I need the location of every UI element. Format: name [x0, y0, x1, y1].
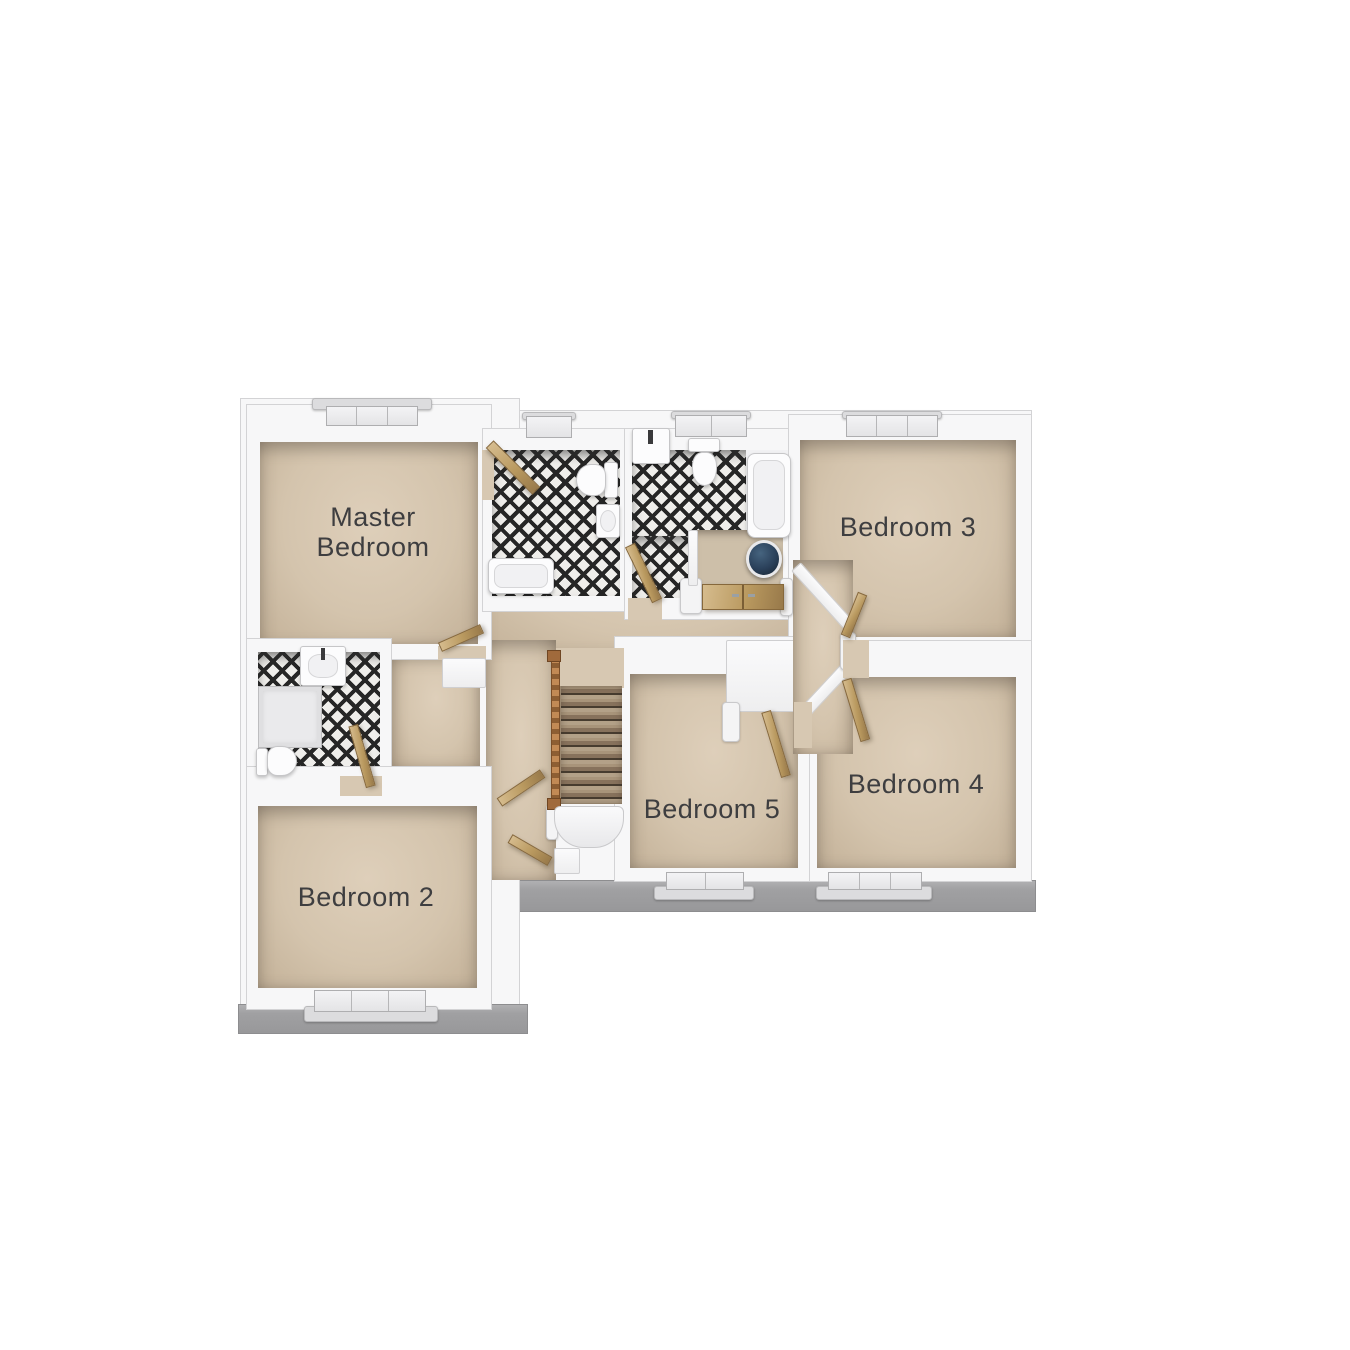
- bedroom-3-doorway: [843, 640, 869, 678]
- basin-tap-icon: [648, 430, 653, 444]
- bathroom-2-window: [675, 415, 747, 437]
- cupboard-door-divider: [742, 585, 744, 609]
- bathroom-2-doorway: [628, 598, 662, 620]
- bedroom-4-label: Bedroom 4: [816, 769, 1016, 799]
- hot-water-cylinder: [746, 540, 782, 578]
- toilet-bowl: [576, 464, 606, 496]
- bedroom-2-label: Bedroom 2: [266, 882, 466, 912]
- door-jamb-bedroom-5: [722, 702, 740, 742]
- bathroom-1-doorway: [482, 450, 494, 500]
- shower-enclosure: [258, 686, 322, 748]
- bathtub-basin: [753, 460, 785, 530]
- roof-eaves-right: [506, 880, 1036, 912]
- cupboard-handle-icon: [732, 594, 739, 597]
- cupboard-handle-icon: [748, 594, 755, 597]
- stair-railing: [551, 656, 560, 806]
- toilet-cistern: [688, 438, 720, 452]
- bedroom-2-window: [314, 990, 426, 1012]
- bedroom-5-label: Bedroom 5: [612, 794, 812, 824]
- bedroom-5-doorway: [794, 702, 812, 748]
- stair-top-landing: [556, 648, 624, 688]
- ensuite-doorway: [340, 776, 382, 796]
- stair-bulkhead-end: [554, 848, 580, 874]
- master-window: [326, 406, 418, 426]
- wall-stub-master: [442, 658, 486, 688]
- bedroom-3-window: [846, 415, 938, 437]
- bathtub-basin: [494, 564, 548, 588]
- master-bedroom-label: Master Bedroom: [283, 502, 463, 562]
- bedroom-4-window: [828, 872, 922, 890]
- bedroom-5-window: [666, 872, 744, 890]
- stair-newel-top: [547, 650, 561, 662]
- staircase: [560, 686, 622, 804]
- bathroom-1-window: [526, 416, 572, 438]
- toilet-cistern: [604, 462, 618, 498]
- bedroom-3-label: Bedroom 3: [808, 512, 1008, 542]
- basin-tap-icon: [321, 648, 325, 660]
- floor-plan: Master Bedroom Bedroom 2 Bedroom 3 Bedro…: [0, 0, 1350, 1350]
- basin-bowl: [600, 510, 616, 532]
- cupboard-wall-left: [688, 530, 698, 586]
- toilet-bowl: [692, 452, 717, 486]
- toilet-bowl: [267, 746, 297, 776]
